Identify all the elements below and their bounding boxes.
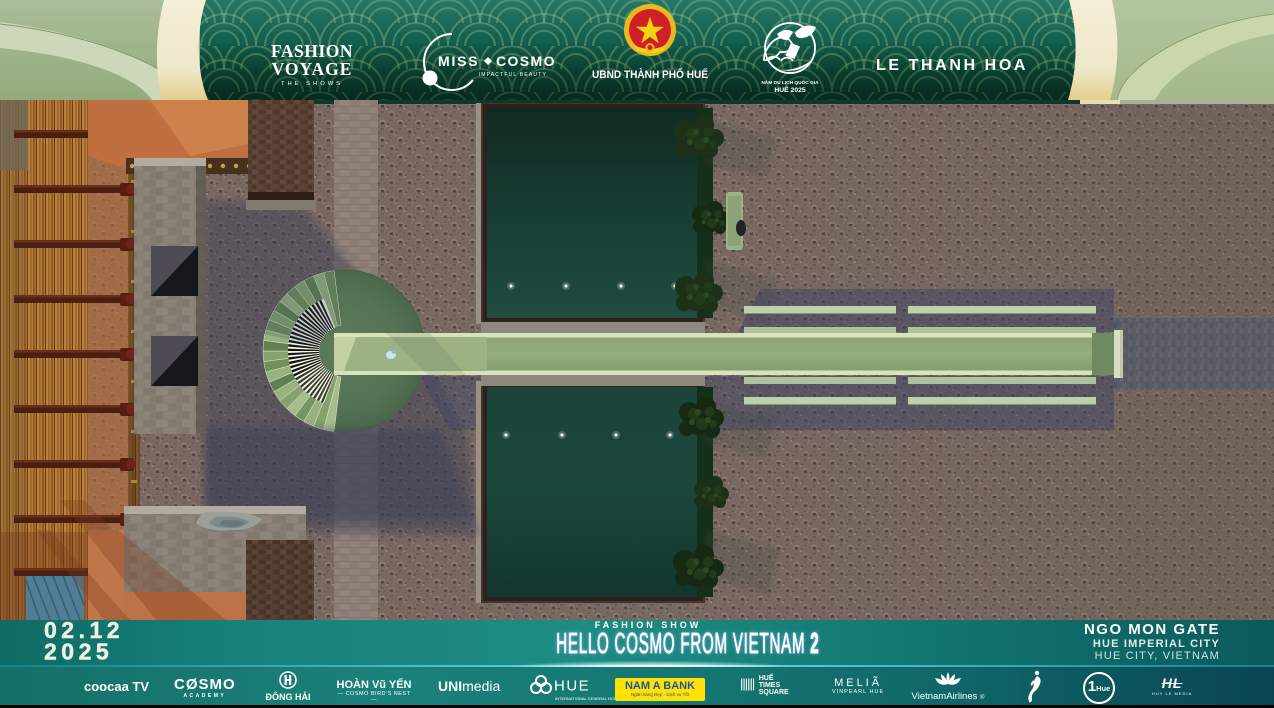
svg-text:NĂM DU LỊCH QUỐC GIA: NĂM DU LỊCH QUỐC GIA	[761, 79, 819, 86]
svg-text:MISS: MISS	[438, 53, 479, 69]
svg-text:LE THANH HOA: LE THANH HOA	[876, 57, 1028, 74]
svg-text:IMPACTFUL BEAUTY: IMPACTFUL BEAUTY	[479, 72, 547, 78]
svg-text:COSMO: COSMO	[496, 53, 556, 69]
svg-text:UBND THÀNH PHỐ HUẾ: UBND THÀNH PHỐ HUẾ	[592, 67, 708, 81]
svg-text:FASHION: FASHION	[271, 41, 353, 61]
svg-text:VOYAGE: VOYAGE	[272, 59, 353, 79]
svg-text:THE SHOWS: THE SHOWS	[281, 81, 343, 87]
